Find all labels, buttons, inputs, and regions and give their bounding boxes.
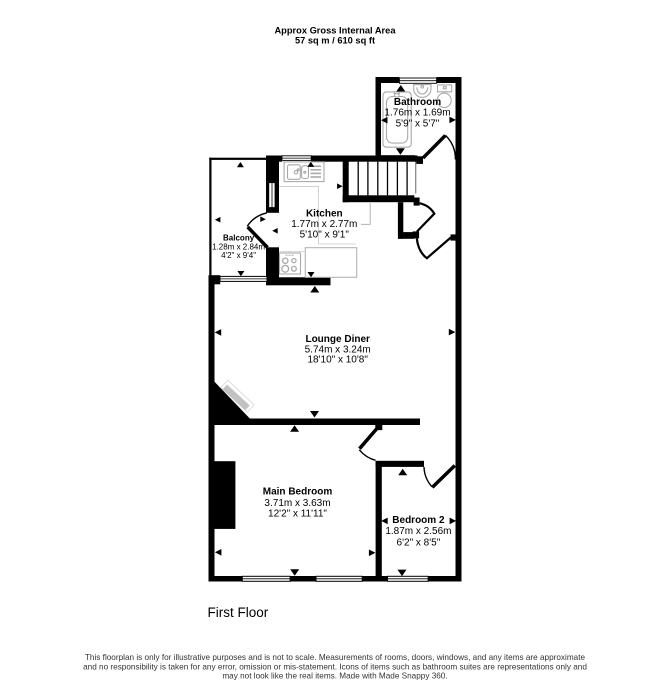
svg-text:1.87m x 2.56m: 1.87m x 2.56m <box>385 526 451 537</box>
svg-text:4'2" x 9'4": 4'2" x 9'4" <box>221 251 256 260</box>
svg-text:may not look like the real ite: may not look like the real items. Made w… <box>222 672 447 681</box>
svg-text:6'2" x 8'5": 6'2" x 8'5" <box>397 537 441 548</box>
svg-text:Lounge Diner: Lounge Diner <box>305 334 370 345</box>
svg-text:3.71m x 3.63m: 3.71m x 3.63m <box>264 498 330 509</box>
svg-text:First Floor: First Floor <box>208 605 269 620</box>
svg-text:and no responsibility is taken: and no responsibility is taken for any e… <box>83 662 587 671</box>
svg-text:Bathroom: Bathroom <box>394 97 441 108</box>
svg-text:1.76m x 1.69m: 1.76m x 1.69m <box>384 108 450 119</box>
svg-text:57 sq m / 610 sq ft: 57 sq m / 610 sq ft <box>295 36 375 46</box>
svg-text:Main Bedroom: Main Bedroom <box>263 487 333 498</box>
svg-text:Approx Gross Internal Area: Approx Gross Internal Area <box>274 25 396 35</box>
svg-text:Bedroom 2: Bedroom 2 <box>392 515 445 526</box>
svg-text:Balcony: Balcony <box>223 234 255 243</box>
svg-text:This floorplan is only for ill: This floorplan is only for illustrative … <box>85 653 586 662</box>
svg-text:1.28m x 2.84m: 1.28m x 2.84m <box>212 242 265 251</box>
svg-text:1.77m x 2.77m: 1.77m x 2.77m <box>291 219 357 230</box>
svg-text:5'10" x 9'1": 5'10" x 9'1" <box>300 230 350 241</box>
svg-text:12'2" x 11'11": 12'2" x 11'11" <box>268 508 327 519</box>
svg-text:5'9" x 5'7": 5'9" x 5'7" <box>396 118 440 129</box>
svg-text:Kitchen: Kitchen <box>306 209 343 220</box>
svg-text:18'10" x 10'8": 18'10" x 10'8" <box>307 355 368 366</box>
